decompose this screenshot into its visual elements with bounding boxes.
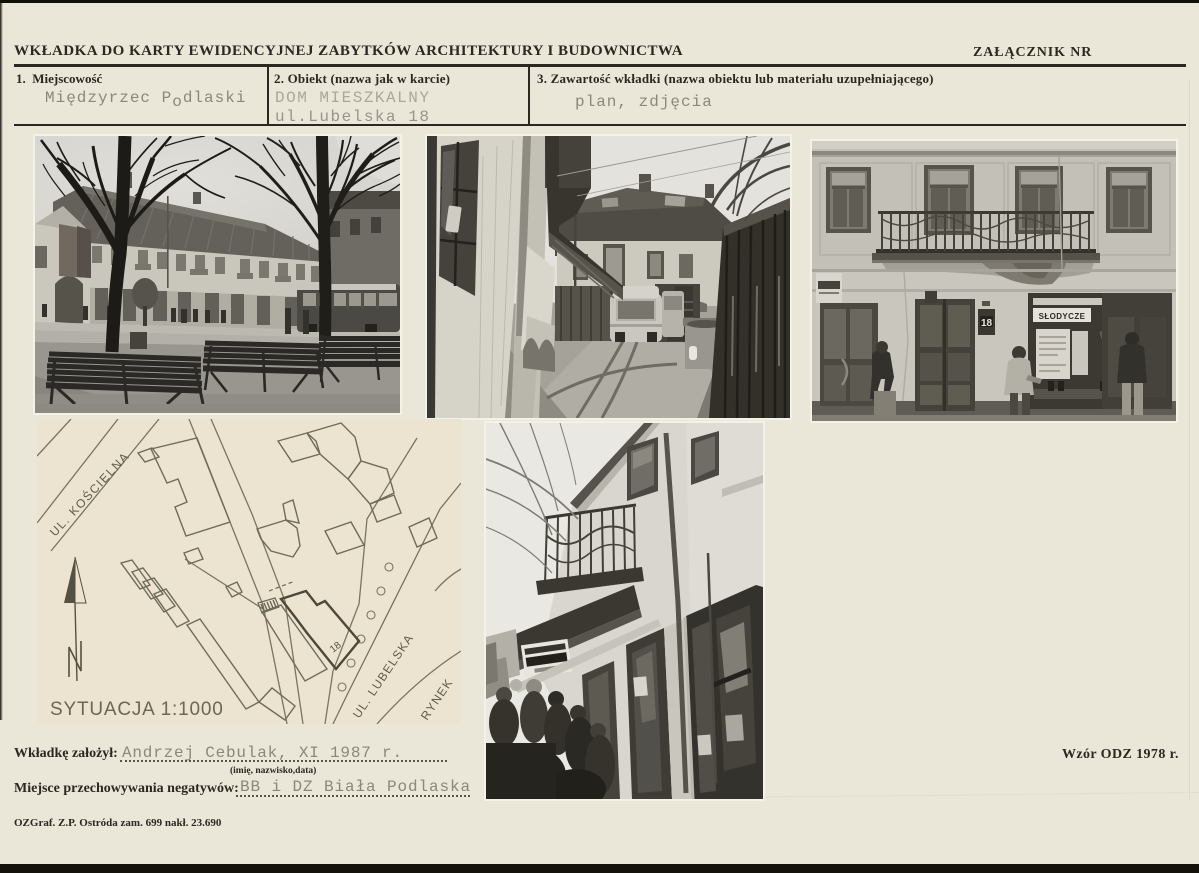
svg-text:SŁODYCZE: SŁODYCZE: [1039, 312, 1086, 321]
svg-text:SYTUACJA 1:1000: SYTUACJA 1:1000: [50, 699, 224, 720]
svg-text:18: 18: [981, 318, 993, 329]
